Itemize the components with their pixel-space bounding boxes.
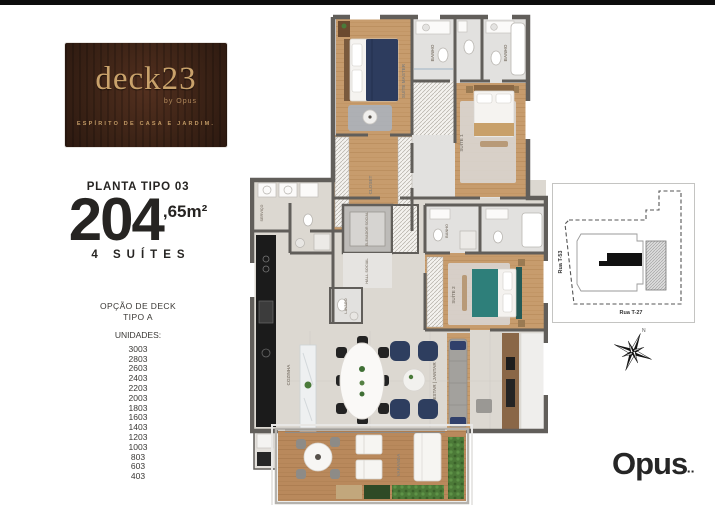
room-label-cozinha: COZINHA [286,364,291,386]
deck-option-line2: TIPO A [123,312,153,322]
unit-item: 403 [48,472,228,482]
plan-area: 204 ,65m² [48,190,228,250]
floorplan-drawing: SUÍTE MASTER BANHO BANHO SUÍTE 1 CLOSET … [250,13,548,505]
compass-rose: N [608,326,658,376]
plan-area-suffix: ,65m² [163,202,207,222]
deck-option-line1: OPÇÃO DE DECK [100,301,176,311]
bathroom-fixtures-mid [425,205,546,253]
opus-wordmark: Opus [612,446,687,481]
units-header: UNIDADES: [48,331,228,341]
brand-logo-by: by Opus [164,98,197,105]
room-label-suite-master: SUÍTE MASTER [399,63,406,98]
compass-star [608,326,658,376]
plan-suites-label: 4 SUÍTES [48,249,228,261]
brand-logo-title: deck23 [95,63,196,96]
site-map-lot [565,191,681,304]
dining-table [336,336,389,425]
site-location-map: Rua T-53 Rua T-27 [552,183,695,323]
room-label-hall: HALL SOCIAL [365,258,369,284]
page: deck23 by Opus ESPÍRITO DE CASA E JARDIM… [0,0,715,514]
deck-option: OPÇÃO DE DECK TIPO A [48,301,228,323]
room-label-lavabo: LAVABO [344,298,348,314]
room-label-estar-jantar: ESTAR | JANTAR [432,362,437,400]
opus-trademark: ▪▪ [687,467,695,476]
room-label-banho2: BANHO [503,44,508,61]
plan-area-number: 204 [69,190,163,250]
room-label-servico: SERVIÇO [260,204,264,221]
room-label-suite1: SUÍTE 1 [457,134,464,152]
units-list: UNIDADES: 3003 2803 2603 2403 2203 2003 … [48,331,228,482]
tv-console [502,333,544,429]
room-label-closet: CLOSET [368,175,373,194]
site-map-neighbor-block [646,241,666,290]
room-label-varanda: VARANDA [396,453,401,476]
top-black-bar [0,0,715,5]
street-label-bottom: Rua T-27 [620,310,643,316]
room-label-elevador: ELEVADOR SOCIAL [365,211,369,246]
room-label-banho1: BANHO [430,44,435,61]
brand-logo-card: deck23 by Opus ESPÍRITO DE CASA E JARDIM… [65,43,227,147]
opus-footer-logo: Opus▪▪ [612,446,702,486]
street-label-left: Rua T-53 [558,251,564,274]
compass-north-label: N [642,328,646,334]
room-label-suite2: SUÍTE 2 [449,286,456,304]
room-label-banho3: BANHO [445,224,449,238]
brand-logo-tagline: ESPÍRITO DE CASA E JARDIM. [77,121,215,127]
